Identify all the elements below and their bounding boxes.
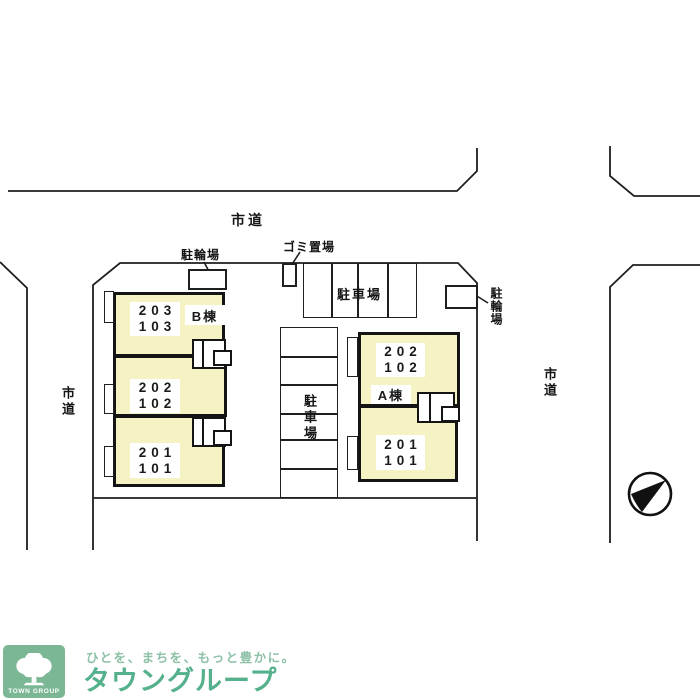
stall-divider	[331, 264, 333, 317]
unit-numbers: 201 101	[130, 443, 180, 478]
unit-number-lower: 103	[134, 319, 177, 335]
unit-number-upper: 201	[134, 445, 177, 461]
unit-numbers: 202 102	[130, 379, 180, 413]
unit-number-upper: 201	[379, 437, 422, 453]
stall-divider	[281, 384, 337, 386]
balcony	[104, 291, 114, 323]
unit-number-lower: 102	[134, 396, 177, 412]
stairwell	[417, 392, 455, 423]
unit-number-upper: 202	[134, 380, 177, 396]
town-group-logo: TOWN GROUP	[3, 645, 65, 698]
bike-parking-top-box	[188, 269, 227, 290]
road-left-line	[0, 262, 27, 550]
stall-divider	[387, 264, 389, 317]
road-left-label: 市道	[58, 386, 77, 418]
parking-top-label: 駐車場	[337, 284, 382, 303]
unit-number-upper: 203	[134, 303, 177, 319]
stall-divider	[281, 468, 337, 470]
balcony	[347, 337, 358, 377]
balcony	[104, 384, 114, 414]
logo-town-group-text: TOWN GROUP	[8, 688, 59, 695]
north-arrow-icon	[629, 473, 671, 515]
parking-center-label: 駐車場	[300, 394, 319, 442]
garbage-label: ゴミ置場	[283, 238, 335, 255]
bike-parking-top-label: 駐輪場	[181, 246, 220, 263]
stairwell	[192, 339, 226, 369]
garbage-area-box	[282, 263, 297, 287]
bike-parking-right-label: 駐輪場	[488, 287, 505, 326]
road-top-label: 市道	[231, 210, 265, 230]
balcony	[347, 436, 358, 470]
unit-number-lower: 102	[379, 360, 422, 376]
site-plan-diagram: 駐車場 駐車場 ゴミ置場 駐輪場 駐輪場 203 103 202 102 2	[0, 0, 700, 700]
bike-parking-right-box	[445, 285, 478, 309]
stairwell	[192, 417, 226, 447]
unit-numbers: 202 102	[376, 343, 425, 377]
balcony	[104, 446, 114, 477]
unit-number-upper: 202	[379, 344, 422, 360]
building-a-name: A棟	[371, 385, 411, 404]
unit-numbers: 201 101	[376, 435, 425, 470]
road-right-label: 市道	[540, 367, 559, 399]
logo-brand-name: タウングループ	[83, 659, 277, 698]
road-top-left-line	[8, 148, 477, 191]
road-top-right-line	[610, 146, 700, 196]
unit-number-lower: 101	[134, 461, 177, 477]
unit-number-lower: 101	[379, 453, 422, 469]
building-b-name: B棟	[185, 305, 225, 325]
stall-divider	[281, 356, 337, 358]
unit-numbers: 203 103	[130, 302, 180, 336]
tree-icon	[10, 653, 58, 687]
road-right-line	[610, 265, 700, 543]
